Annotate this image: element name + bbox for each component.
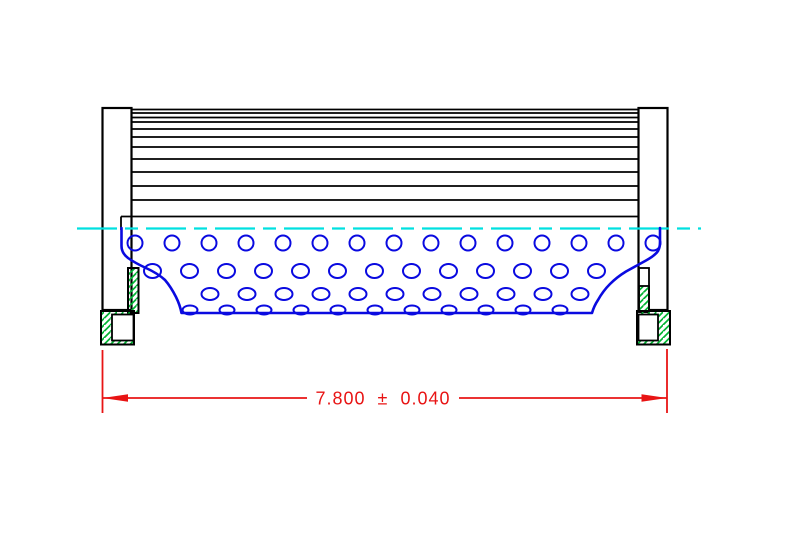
perforation-hole xyxy=(588,264,605,278)
right-seam-hatch xyxy=(639,286,649,312)
perforation-hole xyxy=(461,236,476,251)
perforation-hole xyxy=(461,288,478,300)
perforation-hole xyxy=(387,236,402,251)
perforation-hole xyxy=(440,264,457,278)
pleat-lines xyxy=(131,110,639,201)
dimension-arrow-left xyxy=(103,394,129,402)
perforation-hole xyxy=(514,264,531,278)
perforation-hole xyxy=(477,264,494,278)
perforation-hole xyxy=(292,264,309,278)
perforation-hole xyxy=(387,288,404,300)
perforation-hole xyxy=(535,236,550,251)
perforation-hole xyxy=(181,264,198,278)
dimension-arrow-right xyxy=(642,394,668,402)
dimension-text: 7.800 ± 0.040 xyxy=(316,389,451,409)
right-gasket-block xyxy=(637,311,670,345)
perforation-hole xyxy=(424,236,439,251)
perforation-hole xyxy=(609,236,624,251)
dimension: 7.800 ± 0.040 xyxy=(103,349,668,413)
drawing-svg: 7.800 ± 0.040 xyxy=(0,0,789,546)
perforation-hole xyxy=(202,288,219,300)
perforation-hole xyxy=(366,264,383,278)
perforation-hole xyxy=(255,264,272,278)
perforation-hole xyxy=(239,288,256,300)
left-gasket-block xyxy=(101,311,134,345)
perforation-hole xyxy=(350,288,367,300)
perforation-hole xyxy=(424,288,441,300)
perforation-hole xyxy=(350,236,365,251)
perforation-hole xyxy=(498,288,515,300)
perforation-hole xyxy=(572,236,587,251)
perforation-hole xyxy=(551,264,568,278)
perforation-hole xyxy=(403,264,420,278)
perforation-hole xyxy=(276,288,293,300)
perforation-hole xyxy=(276,236,291,251)
perforation-hole xyxy=(202,236,217,251)
perforation-hole xyxy=(239,236,254,251)
perforation-hole xyxy=(535,288,552,300)
perforation-hole xyxy=(313,288,330,300)
perforation-hole xyxy=(165,236,180,251)
left-seam-hatch-strip xyxy=(128,268,139,313)
perforation-hole xyxy=(329,264,346,278)
filter-element-drawing: 7.800 ± 0.040 xyxy=(0,0,789,546)
perforation-holes xyxy=(128,236,661,315)
perforation-hole xyxy=(498,236,513,251)
perforation-hole xyxy=(218,264,235,278)
perforation-hole xyxy=(313,236,328,251)
perforation-hole xyxy=(572,288,589,300)
